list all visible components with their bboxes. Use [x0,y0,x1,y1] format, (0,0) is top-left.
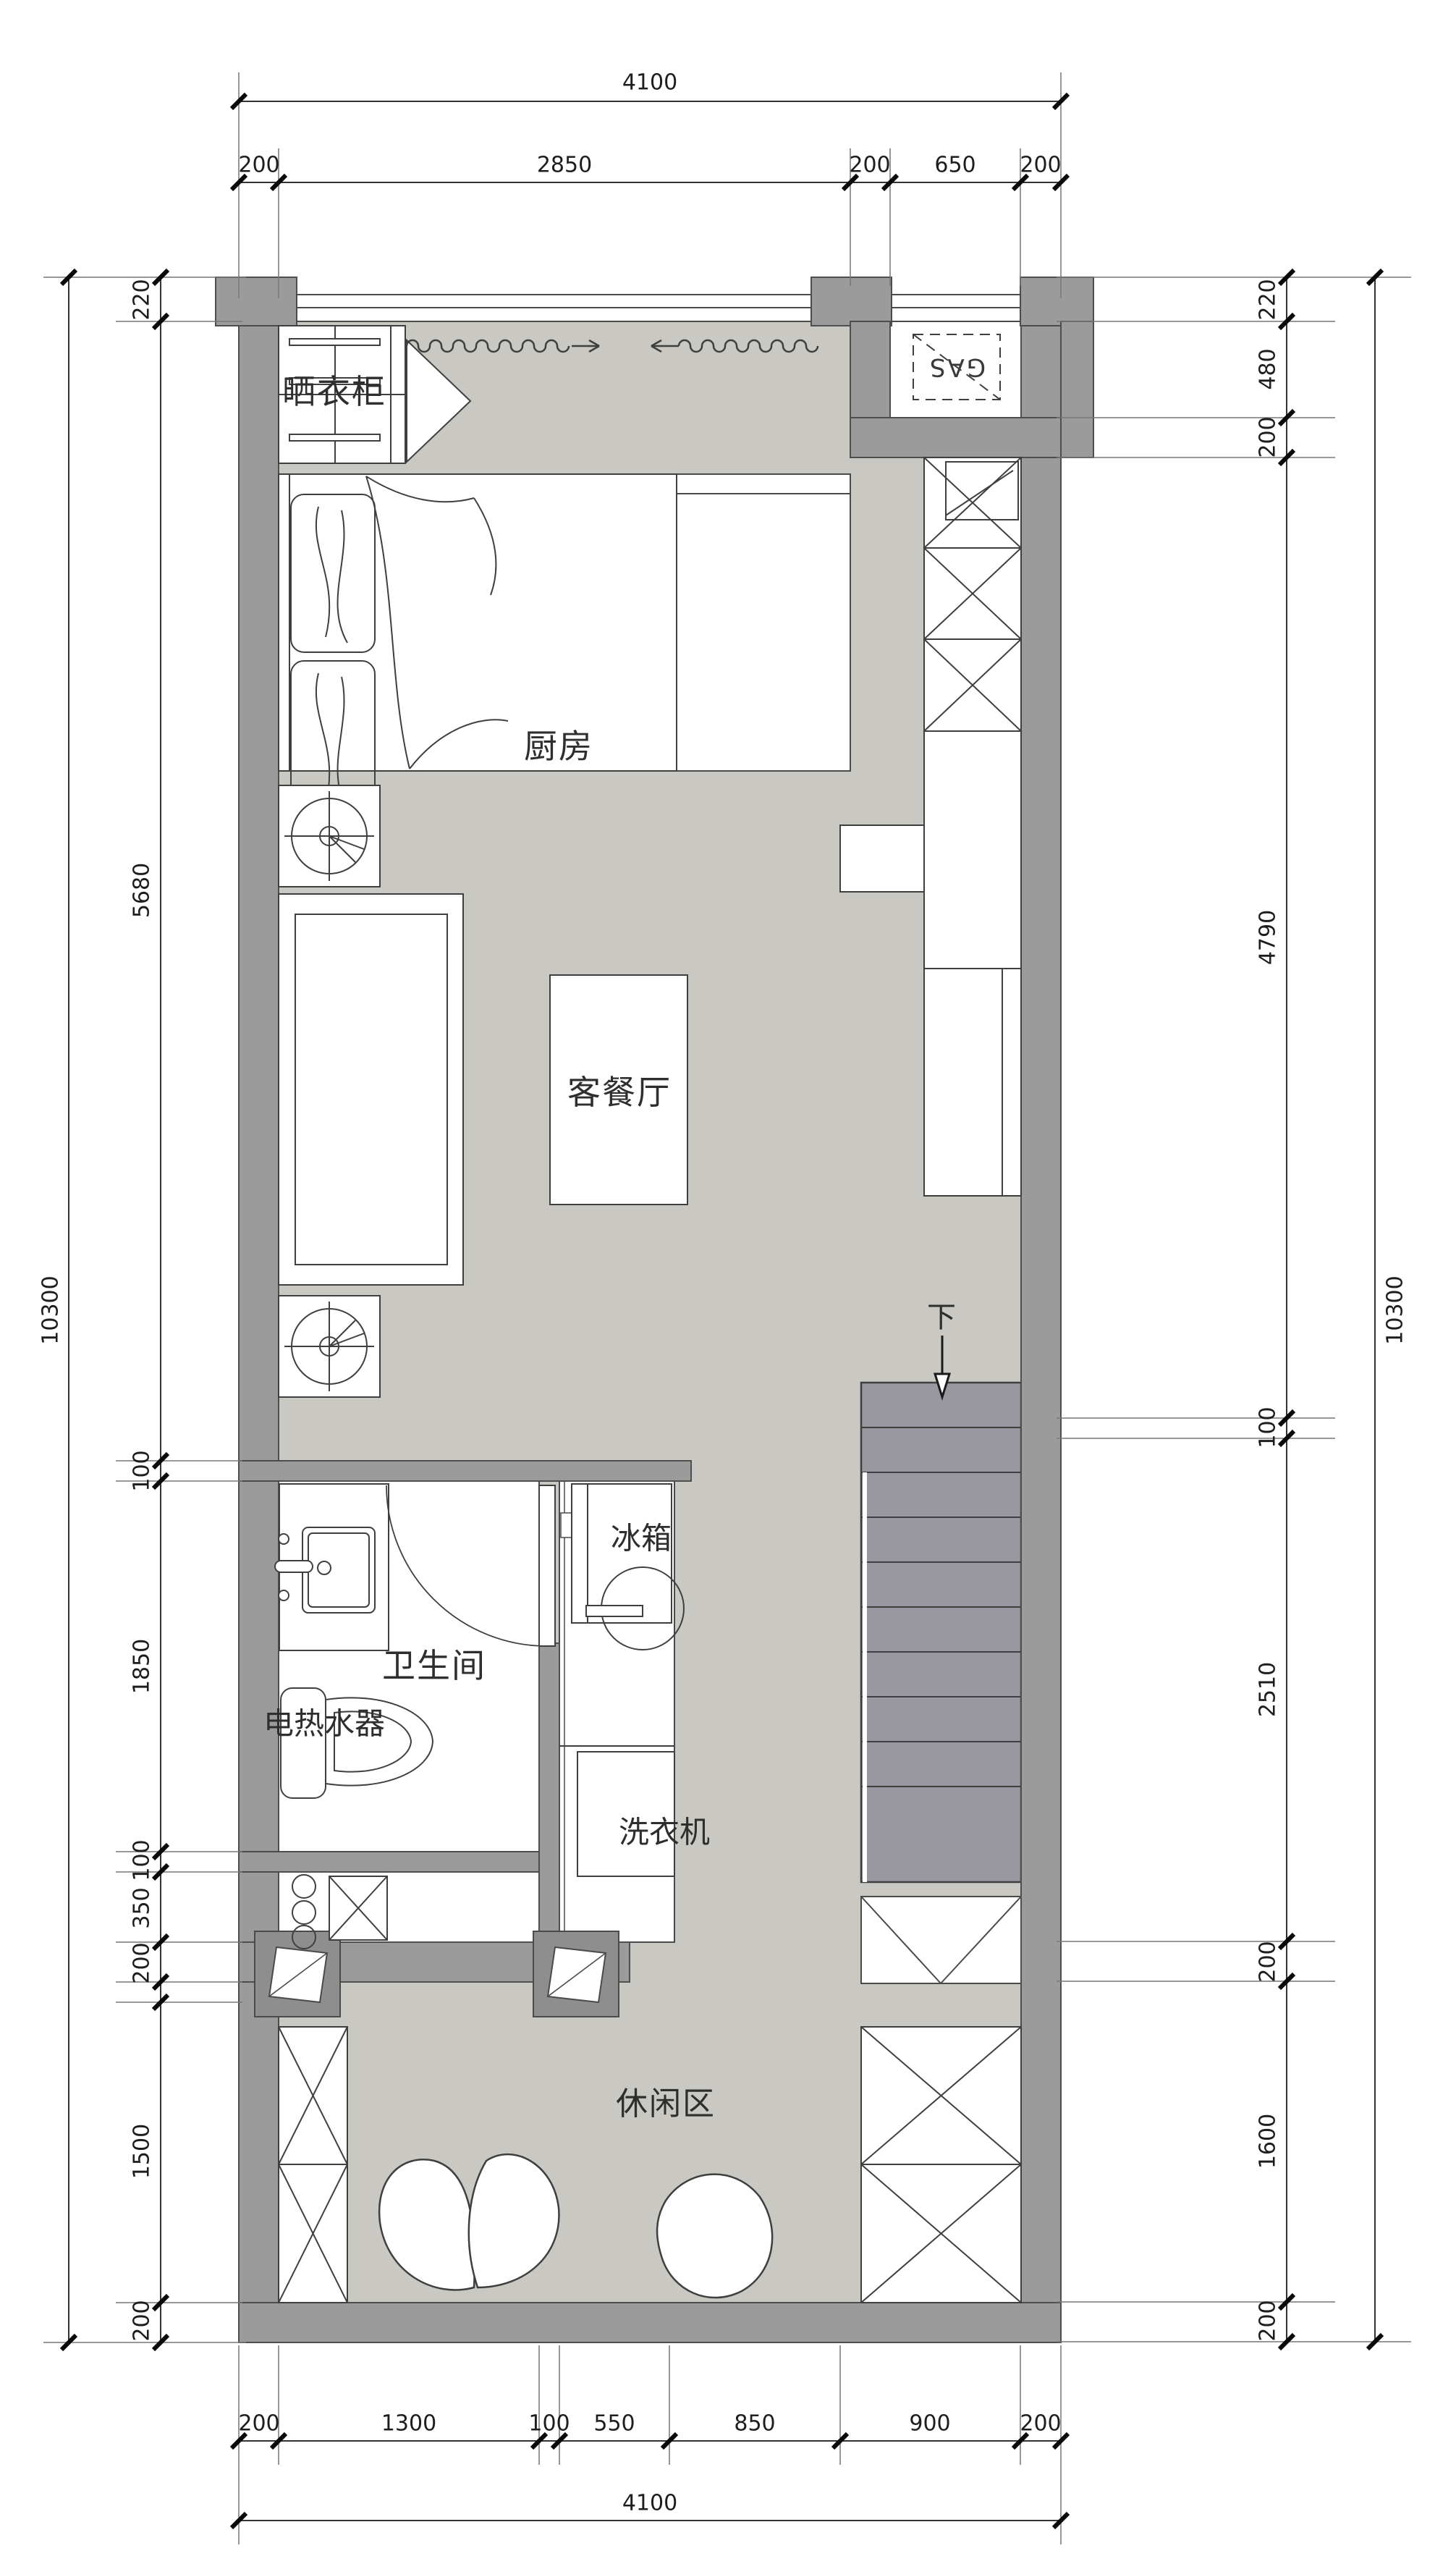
dim-right-2: 200 [1256,416,1281,457]
wall-bathroom-bottom [239,1852,539,1872]
side-table-bottom [279,1296,380,1397]
label-washing-machine: 洗衣机 [619,1808,710,1852]
x-cabinet-right [861,2027,1021,2303]
dim-bottom-0: 200 [238,2411,279,2437]
dim-right-total: 10300 [1383,1275,1408,1344]
pillar-top-mid [811,277,892,326]
counter-box [840,825,924,892]
dim-bottom-5: 900 [909,2411,950,2437]
label-leisure: 休闲区 [616,2078,716,2124]
wall-bottom [239,2303,1061,2342]
dim-right-5: 2510 [1256,1662,1281,1717]
understair-storage [861,1897,1021,1983]
dim-right-4: 100 [1256,1406,1281,1448]
dim-top-3: 650 [934,153,975,178]
dim-bottom-1: 1300 [381,2411,436,2437]
dim-right-1: 480 [1256,348,1281,389]
cabinet-column [924,457,1021,1196]
label-living-dining: 客餐厅 [567,1066,672,1114]
dim-right-0: 220 [1256,279,1281,320]
label-water-heater: 电热水器 [263,1700,385,1744]
wall-bathroom-right [539,1643,559,1942]
label-drying-closet: 晒衣柜 [282,366,386,413]
dim-bottom-total: 4100 [622,2491,677,2516]
dim-left-7: 1500 [130,2124,155,2179]
dim-left-total: 10300 [38,1275,64,1344]
dim-top-0: 200 [238,153,279,178]
dim-left-5: 350 [130,1887,155,1928]
window-top [297,295,1020,321]
door-pillar-mid [533,1931,619,2017]
plan-drawing [0,0,1456,2556]
dim-bottom-6: 200 [1020,2411,1061,2437]
dim-right-8: 200 [1256,2300,1281,2341]
staircase [861,1383,1021,1882]
wall-left [239,277,279,2342]
dim-right-7: 1600 [1256,2114,1281,2169]
label-kitchen: 厨房 [524,720,593,768]
wall-niche-bottom [850,418,1061,457]
dim-left-4: 100 [130,1839,155,1881]
pillar-top-right [1020,277,1093,326]
floor-plan-canvas: 晒衣柜 厨房 客餐厅 卫生间 电热水器 冰箱 洗衣机 休闲区 下 GAS 410… [0,0,1456,2556]
dim-right-6: 200 [1256,1941,1281,1982]
dim-top-total: 4100 [622,70,677,96]
dim-bottom-3: 550 [593,2411,635,2437]
dim-left-6: 200 [130,1942,155,1983]
label-gas: GAS [928,353,986,381]
door-pillar-left [255,1931,340,2017]
wall-bathroom-top [239,1461,691,1481]
pillar-niche-right [1061,321,1093,457]
dim-top-2: 200 [849,153,890,178]
dim-left-1: 5680 [130,863,155,918]
dim-left-0: 220 [130,279,155,320]
label-bathroom: 卫生间 [382,1640,486,1687]
pillar-top-left [216,277,297,326]
label-stairs-down: 下 [927,1294,956,1336]
sofa [279,894,463,1285]
side-table-top [279,785,380,887]
dim-bottom-2: 100 [528,2411,570,2437]
bed [279,474,677,819]
dim-bottom-4: 850 [734,2411,775,2437]
bathroom-sink [275,1484,389,1650]
dim-top-1: 2850 [537,153,592,178]
wall-right [1021,277,1061,2342]
dim-right-3: 4790 [1256,910,1281,965]
dim-top-4: 200 [1020,153,1061,178]
label-fridge: 冰箱 [611,1514,672,1559]
dim-left-3: 1850 [130,1639,155,1694]
dim-left-2: 100 [130,1450,155,1491]
x-cabinet-left [279,2027,347,2303]
dim-left-8: 200 [130,2300,155,2341]
